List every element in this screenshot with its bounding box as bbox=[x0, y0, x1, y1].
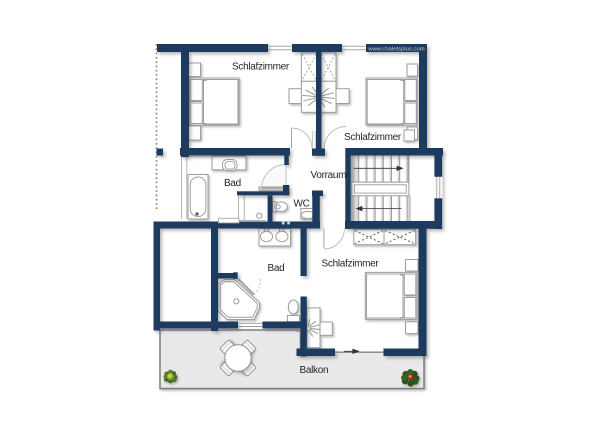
svg-text:Vorraum: Vorraum bbox=[311, 170, 347, 181]
svg-text:Balkon: Balkon bbox=[300, 365, 329, 376]
svg-text:Schlafzimmer: Schlafzimmer bbox=[344, 132, 402, 143]
svg-text:WC: WC bbox=[294, 199, 310, 210]
svg-text:Bad: Bad bbox=[224, 178, 241, 189]
svg-text:Schlafzimmer: Schlafzimmer bbox=[322, 259, 380, 270]
svg-text:Bad: Bad bbox=[268, 263, 285, 274]
svg-text:www.chaletsplus.com: www.chaletsplus.com bbox=[367, 47, 424, 53]
svg-text:Schlafzimmer: Schlafzimmer bbox=[232, 61, 290, 72]
